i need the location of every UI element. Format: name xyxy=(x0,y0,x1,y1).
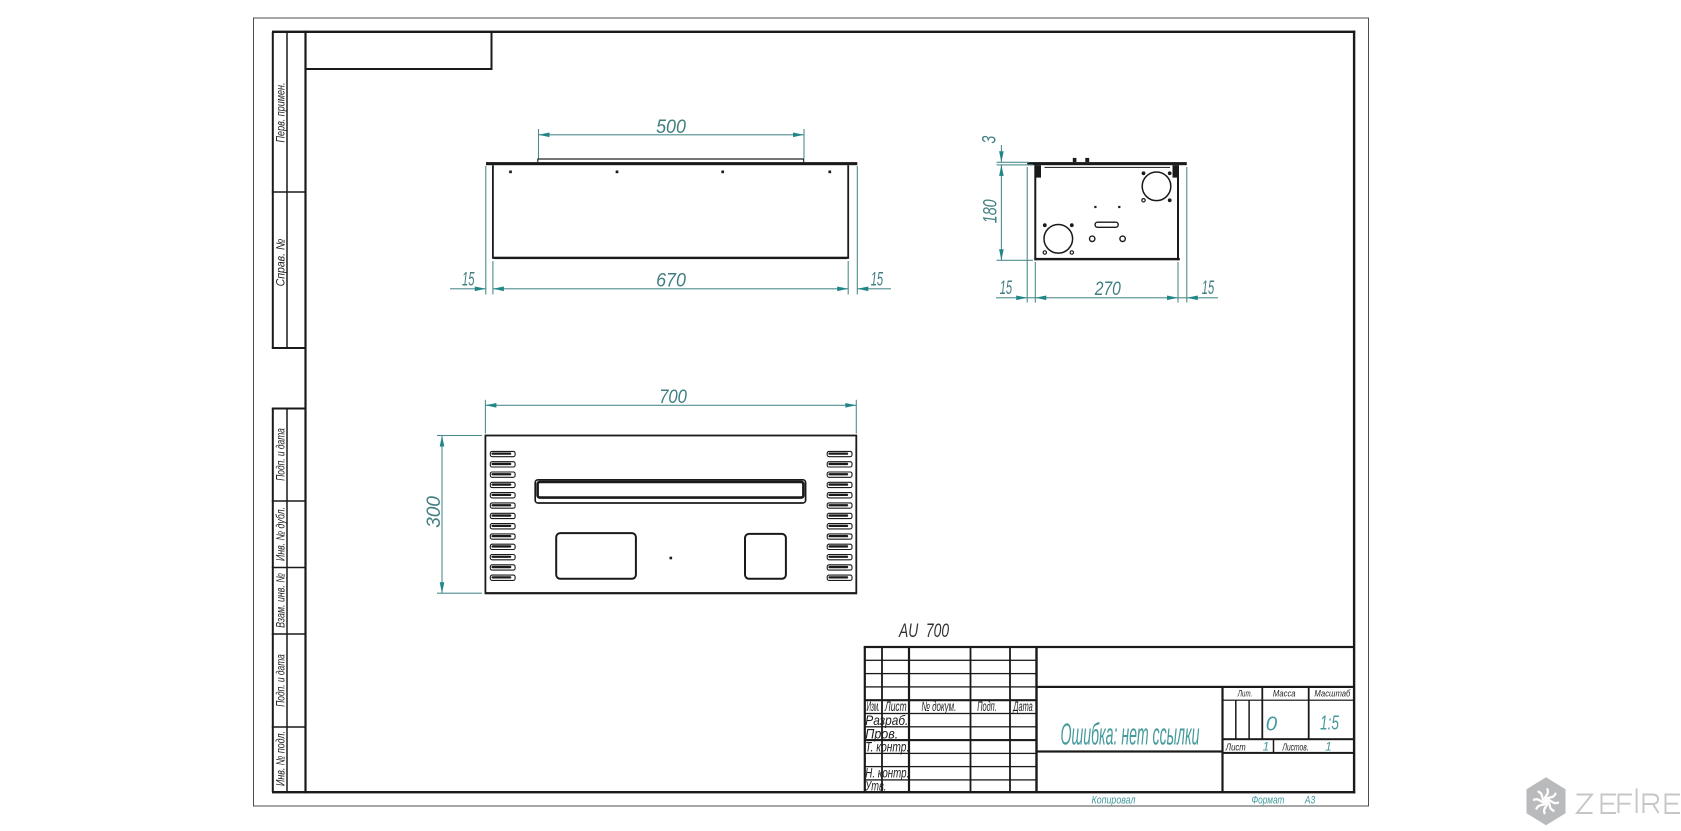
svg-text:270: 270 xyxy=(1094,278,1121,300)
svg-text:1:5: 1:5 xyxy=(1320,711,1339,735)
svg-text:Ошибка: нет ссылки: Ошибка: нет ссылки xyxy=(1061,717,1200,752)
svg-text:1: 1 xyxy=(1263,739,1270,753)
svg-text:15: 15 xyxy=(1000,278,1013,299)
svg-text:Копировал: Копировал xyxy=(1092,795,1136,807)
svg-text:15: 15 xyxy=(462,270,475,291)
svg-text:Н. контр.: Н. контр. xyxy=(865,766,909,781)
svg-text:Подп. и дата: Подп. и дата xyxy=(275,654,288,707)
svg-text:300: 300 xyxy=(424,496,445,528)
svg-text:0: 0 xyxy=(1266,713,1278,736)
svg-text:670: 670 xyxy=(656,269,686,291)
svg-text:Дата: Дата xyxy=(1013,700,1033,715)
svg-text:700: 700 xyxy=(659,386,687,407)
svg-text:Масса: Масса xyxy=(1273,688,1296,699)
svg-text:3: 3 xyxy=(978,135,1000,143)
svg-text:А3: А3 xyxy=(1304,795,1316,807)
svg-text:Масштаб: Масштаб xyxy=(1314,688,1351,699)
svg-text:15: 15 xyxy=(1202,278,1215,299)
svg-text:Перв. примен.: Перв. примен. xyxy=(274,83,288,143)
svg-text:Формат: Формат xyxy=(1252,794,1285,806)
svg-text:№ докум.: № докум. xyxy=(921,700,956,715)
svg-text:500: 500 xyxy=(656,115,686,137)
svg-text:Взам. инв. №: Взам. инв. № xyxy=(274,573,288,628)
svg-text:Лит.: Лит. xyxy=(1237,688,1252,699)
svg-text:Лист: Лист xyxy=(1225,741,1246,752)
svg-text:AU 700: AU 700 xyxy=(898,620,949,642)
svg-text:Инв. № дубл.: Инв. № дубл. xyxy=(274,507,288,561)
svg-text:Инв. № подл.: Инв. № подл. xyxy=(274,731,288,786)
svg-text:Утв.: Утв. xyxy=(864,780,886,794)
svg-text:Т. контр.: Т. контр. xyxy=(865,739,909,755)
svg-text:Листов.: Листов. xyxy=(1282,741,1309,753)
svg-text:Справ. №: Справ. № xyxy=(275,239,288,287)
svg-text:1: 1 xyxy=(1325,739,1332,753)
svg-text:Подп.: Подп. xyxy=(977,700,997,715)
svg-text:Подп. и дата: Подп. и дата xyxy=(275,428,288,481)
svg-text:180: 180 xyxy=(979,199,1001,223)
svg-text:15: 15 xyxy=(871,270,884,291)
